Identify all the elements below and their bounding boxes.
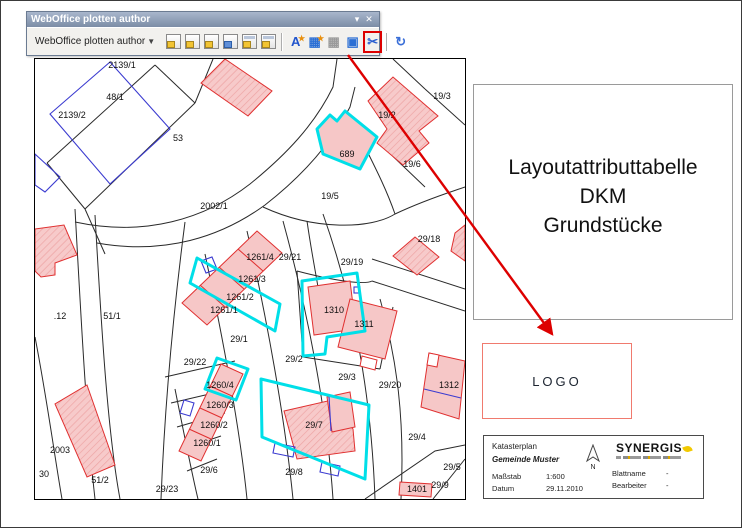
logo-placeholder-box: LOGO [482, 343, 632, 419]
save-plot-icon[interactable] [241, 33, 258, 50]
plot-print-settings-icon-glyph [204, 34, 219, 49]
close-button[interactable]: ✕ [363, 13, 375, 26]
minimize-button[interactable]: ▾ [351, 13, 363, 26]
date-value: 29.11.2010 [546, 484, 583, 493]
plot-print-icon-glyph [185, 34, 200, 49]
brand-logo: SYNERGIS [616, 441, 692, 459]
new-star-badge-icon: ★ [317, 30, 324, 47]
scale-label: Maßstab [492, 472, 521, 481]
weboffice-plot-window: WebOffice plotten author ▾ ✕ WebOffice p… [26, 11, 380, 56]
refresh-icon[interactable]: ↻ [392, 33, 409, 50]
plot-print-settings-icon[interactable] [203, 33, 220, 50]
new-attribute-table-icon[interactable]: ▦★ [306, 33, 323, 50]
toolbar-separator [386, 33, 388, 51]
logo-text: LOGO [532, 374, 582, 389]
save-plot-as-icon-glyph [261, 34, 276, 49]
plot-pdf-icon-glyph [166, 34, 181, 49]
north-arrow-icon [585, 444, 601, 464]
plan-title: Katasterplan [492, 442, 537, 451]
brand-name: SYNERGIS [616, 441, 682, 455]
editor-value: - [666, 481, 669, 490]
screenshot-root: 2139/148/12139/2532002/119/219/368919/61… [0, 0, 742, 528]
layout-box-line-1: Layoutattributtabelle [474, 153, 732, 182]
save-plot-as-icon[interactable] [260, 33, 277, 50]
date-label: Datum [492, 484, 514, 493]
layout-box-line-3: Grundstücke [474, 211, 732, 240]
toolbar-icons: A★▦★▦▣✂↻ [164, 31, 410, 53]
new-star-badge-icon: ★ [298, 30, 305, 47]
north-label: N [584, 464, 602, 471]
map-canvas[interactable]: 2139/148/12139/2532002/119/219/368919/61… [34, 58, 466, 500]
plot-pdf-icon[interactable] [165, 33, 182, 50]
plan-info-box: Katasterplan Gemeinde Muster Maßstab 1:6… [483, 435, 704, 499]
edit-layout-element-icon[interactable]: ✂ [366, 33, 379, 50]
attribute-table-icon[interactable]: ▦ [325, 33, 342, 50]
plot-export-icon-glyph [223, 34, 238, 49]
sheet-label: Blattname [612, 469, 646, 478]
sheet-value: - [666, 469, 669, 478]
text-element-icon[interactable]: A★ [287, 33, 304, 50]
highlighted-tool-frame: ✂ [363, 31, 382, 53]
editor-label: Bearbeiter [612, 481, 647, 490]
toolbar-separator [281, 33, 283, 51]
leaf-icon [682, 445, 692, 453]
chevron-down-icon: ▼ [147, 37, 155, 46]
map-drawing [35, 59, 465, 499]
plot-export-icon[interactable] [222, 33, 239, 50]
plan-municipality: Gemeinde Muster [492, 455, 559, 464]
plot-print-icon[interactable] [184, 33, 201, 50]
save-plot-icon-glyph [242, 34, 257, 49]
plot-mode-dropdown[interactable]: WebOffice plotten author▼ [31, 33, 159, 50]
window-title: WebOffice plotten author [31, 14, 351, 25]
scale-value: 1:600 [546, 472, 565, 481]
brand-tagline [616, 456, 682, 459]
layout-window-icon[interactable]: ▣ [344, 33, 361, 50]
window-titlebar[interactable]: WebOffice plotten author ▾ ✕ [27, 12, 379, 27]
north-arrow: N [584, 444, 602, 471]
layout-attribute-table-box: Layoutattributtabelle DKM Grundstücke [473, 84, 733, 320]
plot-toolbar: WebOffice plotten author▼ A★▦★▦▣✂↻ [27, 27, 379, 55]
layout-box-line-2: DKM [474, 182, 732, 211]
